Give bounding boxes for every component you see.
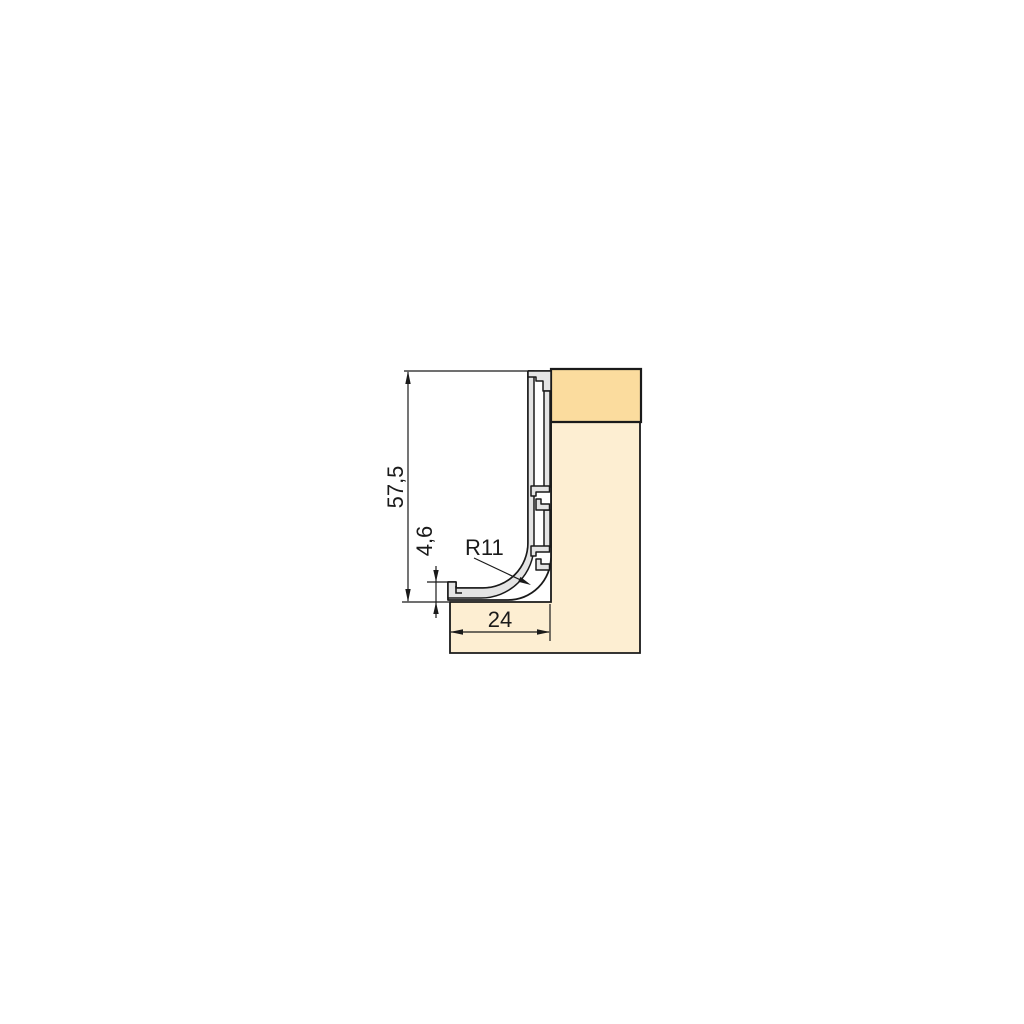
profile-group xyxy=(448,371,551,600)
profile-right-wall-upper xyxy=(544,391,550,487)
dimension-corner-radius: R11 xyxy=(465,535,532,587)
arrowhead-down xyxy=(405,589,410,602)
arrowhead-up-to-bottom xyxy=(433,602,438,614)
profile-section-drawing: 57,5 4,6 R11 24 xyxy=(0,0,1024,1024)
profile-right-wall-mid xyxy=(544,510,550,547)
dimension-lip-height: 4,6 xyxy=(412,526,439,618)
dim-text-lip-height: 4,6 xyxy=(412,526,437,557)
dim-text-radius: R11 xyxy=(465,535,504,560)
drawing-canvas: 57,5 4,6 R11 24 xyxy=(0,0,1024,1024)
panel-top-edge-band xyxy=(551,369,641,422)
arrowhead-up xyxy=(405,371,410,384)
dimension-overall-height: 57,5 xyxy=(383,371,411,602)
dim-text-overall-height: 57,5 xyxy=(383,466,408,509)
profile-left-wall-and-foot xyxy=(448,371,534,598)
arrowhead-down-to-lip xyxy=(433,570,438,582)
dim-text-depth: 24 xyxy=(488,607,512,632)
